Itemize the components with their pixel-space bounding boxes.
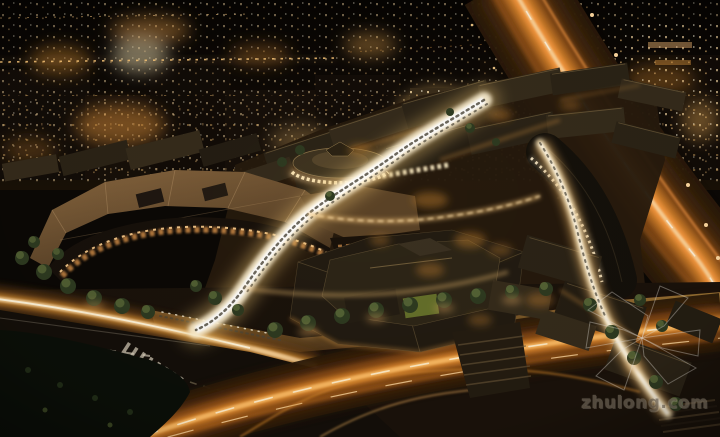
watermark-text: zhulong.com [581, 392, 711, 414]
night-aerial-rendering: zhulong.com [0, 0, 720, 437]
vignette-overlay [0, 0, 720, 437]
scene-canvas [0, 0, 720, 437]
